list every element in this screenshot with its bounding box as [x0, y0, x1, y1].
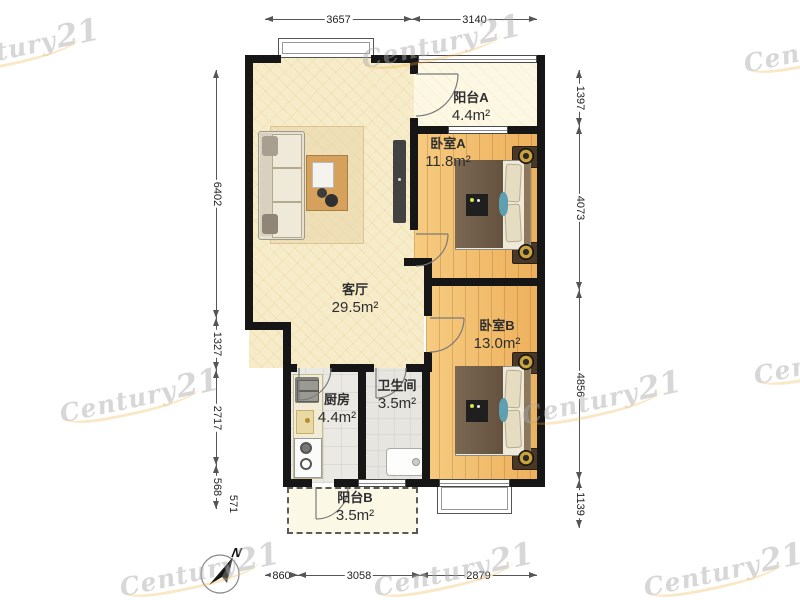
- sink-basin: [297, 380, 319, 391]
- watermark-swoosh: [64, 388, 201, 427]
- room-name: 阳台B: [310, 490, 400, 506]
- room-label-balcony-b: 阳台B 3.5m²: [310, 490, 400, 526]
- cushion-dot: [477, 405, 480, 408]
- wall-segment: [432, 278, 545, 286]
- bay-window-top: [278, 38, 374, 58]
- watermark-logo: Century21: [640, 535, 800, 600]
- dimension-value: 1327: [211, 330, 223, 358]
- room-area: 3.5m²: [352, 395, 442, 414]
- room-label-bedroom-a: 卧室A 11.8m²: [408, 136, 488, 172]
- dimension-bottom-3: 2879: [420, 568, 537, 583]
- watermark-swoosh: [648, 562, 785, 600]
- compass-icon: [196, 545, 250, 599]
- room-name: 卫生间: [352, 378, 442, 394]
- dimension-left-3: 2717: [209, 370, 224, 465]
- room-area: 3.5m²: [310, 507, 400, 526]
- dimension-value: 6402: [211, 180, 223, 208]
- dimension-value: 3058: [345, 570, 373, 582]
- room-name: 阳台A: [421, 90, 521, 106]
- table-decor: [325, 194, 338, 207]
- room-area: 4.4m²: [421, 107, 521, 126]
- wall-segment: [410, 118, 418, 230]
- room-label-balcony-a: 阳台A 4.4m²: [421, 90, 521, 126]
- watermark-swoosh: [748, 38, 800, 77]
- headboard: [524, 366, 530, 454]
- burner-icon: [300, 442, 312, 454]
- wall-segment: [283, 322, 291, 487]
- dimension-value: 1139: [574, 490, 586, 518]
- dimension-left-2: 1327: [209, 318, 224, 370]
- dimension-value: 3657: [324, 14, 352, 26]
- room-name: 卧室A: [408, 136, 488, 152]
- watermark-logo: Century21: [0, 11, 103, 80]
- window: [448, 126, 508, 134]
- room-label-bedroom-b: 卧室B 13.0m²: [447, 318, 547, 354]
- wall-segment: [245, 55, 253, 330]
- accent-pillow: [499, 192, 508, 216]
- dimension-right-4: 1139: [572, 480, 587, 528]
- dimension-value: 1397: [574, 84, 586, 112]
- room-name: 卧室B: [447, 318, 547, 334]
- room-area: 11.8m²: [408, 153, 488, 172]
- dimension-bottom-1: 860: [265, 568, 298, 583]
- dimension-value: 4073: [574, 194, 586, 222]
- dimension-right-1: 1397: [572, 70, 587, 126]
- dimension-bottom-2: 3058: [298, 568, 420, 583]
- dimension-value: 4856: [574, 371, 586, 399]
- dimension-value: 3140: [460, 14, 488, 26]
- sofa-cushion: [272, 168, 302, 202]
- bay-window-bottom: [437, 483, 512, 514]
- room-name: 客厅: [305, 282, 405, 298]
- cushion-dot: [470, 404, 474, 408]
- wall-segment: [291, 364, 297, 372]
- wall-segment: [283, 479, 312, 487]
- wall-segment: [410, 126, 448, 134]
- compass: N: [196, 545, 250, 599]
- dimension-value: 568: [211, 476, 223, 498]
- bed-a-cushion: [466, 194, 488, 216]
- floor-plan: 阳台A 4.4m² 卧室A 11.8m² 客厅 29.5m² 卧室B 13.0m…: [0, 0, 800, 600]
- dimension-left-1: 6402: [209, 70, 224, 318]
- room-area: 29.5m²: [305, 299, 405, 318]
- wall-segment: [406, 364, 432, 372]
- dimension-value: 2717: [211, 403, 223, 431]
- bed-b-cushion: [466, 400, 488, 422]
- wall-segment: [334, 479, 358, 487]
- tv-detail: [398, 178, 401, 181]
- tub-drain: [412, 458, 420, 466]
- lamp-icon: [518, 450, 534, 466]
- dimension-top-1: 3657: [265, 12, 412, 27]
- burner-icon: [300, 458, 312, 470]
- wall-segment: [424, 258, 432, 316]
- watermark-swoosh: [526, 390, 663, 429]
- cushion-dot: [477, 199, 480, 202]
- wall-segment: [410, 63, 418, 74]
- dimension-top-2: 3140: [412, 12, 537, 27]
- window: [418, 55, 537, 63]
- cushion-dot: [470, 198, 474, 202]
- lamp-icon: [518, 244, 534, 260]
- wall-segment: [371, 55, 418, 63]
- window: [439, 479, 510, 487]
- lamp-icon: [518, 354, 534, 370]
- room-label-bathroom: 卫生间 3.5m²: [352, 378, 442, 414]
- wall-segment: [510, 479, 545, 487]
- throw-pillow: [262, 136, 278, 156]
- accent-pillow: [499, 398, 508, 422]
- dimension-right-3: 4856: [572, 290, 587, 480]
- table-tray: [312, 162, 334, 188]
- dimension-value: 2879: [464, 570, 492, 582]
- watermark-logo: Century21: [750, 323, 800, 392]
- wall-segment: [537, 55, 545, 486]
- lamp-icon: [518, 148, 534, 164]
- dimension-value: 860: [270, 570, 292, 582]
- room-area: 13.0m²: [447, 335, 547, 354]
- watermark-logo: Century21: [56, 361, 222, 430]
- watermark-swoosh: [0, 38, 81, 77]
- wall-segment: [330, 364, 374, 372]
- room-label-living-room: 客厅 29.5m²: [305, 282, 405, 318]
- dimension-right-2: 4073: [572, 126, 587, 290]
- throw-pillow: [262, 214, 278, 234]
- dimension-left-4: 568: [209, 465, 224, 509]
- watermark-logo: Century21: [740, 11, 800, 80]
- window: [358, 479, 406, 487]
- wall-segment: [406, 479, 439, 487]
- hallway-floor: [408, 262, 424, 368]
- headboard: [524, 160, 530, 248]
- dimension-left-5: 571: [227, 493, 239, 515]
- wall-segment: [508, 126, 537, 134]
- watermark-swoosh: [758, 350, 800, 389]
- tv-cabinet: [393, 140, 406, 223]
